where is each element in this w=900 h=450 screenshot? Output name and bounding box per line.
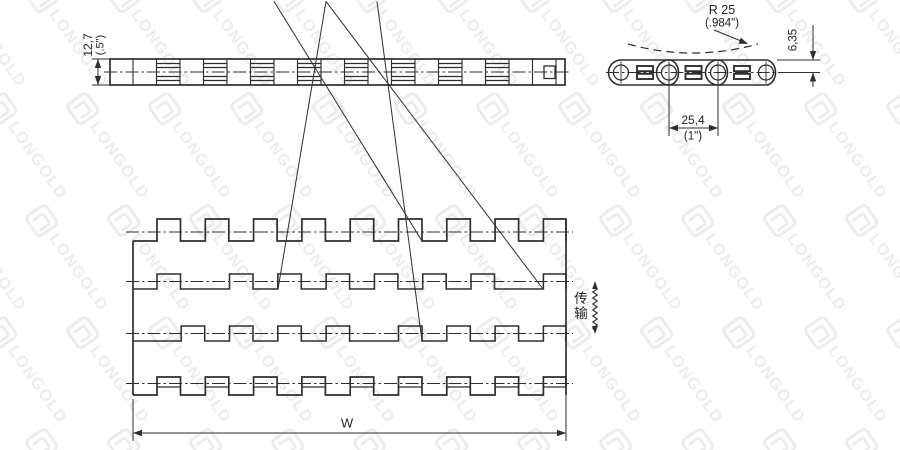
drawing-line xyxy=(326,1,543,289)
side-height-mm-label: 12,7 xyxy=(82,33,94,56)
belt-side-view xyxy=(92,59,571,85)
pitch-mm-label: 25,4 xyxy=(681,114,704,126)
link-bar xyxy=(734,74,750,79)
side-height-inch-label: (.5") xyxy=(96,35,107,55)
dimension-arrowhead xyxy=(557,430,566,436)
drawing-line xyxy=(274,1,422,241)
dimension-arrowhead xyxy=(810,73,816,82)
dimension-arrowhead xyxy=(669,125,678,131)
flow-arrow-head xyxy=(592,326,598,334)
top-to-center-mm-label: 6,35 xyxy=(788,29,800,51)
belt-width-label: W xyxy=(341,417,353,430)
dimension-arrowhead xyxy=(133,430,142,436)
dimension-arrowhead xyxy=(709,125,718,131)
link-bar xyxy=(734,66,750,71)
flow-arrow-head xyxy=(592,281,598,289)
drawing-line xyxy=(278,1,326,289)
dimension-arrowhead xyxy=(95,59,101,68)
radius-leader-arrowhead xyxy=(738,38,748,44)
belt-top-edge xyxy=(133,219,566,241)
link-bar xyxy=(637,66,653,71)
drawing-line xyxy=(377,1,422,341)
dimension-arrowhead xyxy=(95,76,101,85)
drawing-canvas xyxy=(0,0,900,450)
pitch-inch-label: (1") xyxy=(684,131,702,143)
backflex-radius-label: R 25 xyxy=(709,4,735,17)
flow-arrow-shaft xyxy=(593,286,597,331)
engineering-drawing: LONGOLDLONGOLDLONGOLDLONGOLDLONGOLDLONGO… xyxy=(0,0,900,450)
link-bar xyxy=(637,74,653,79)
dimension-arrowhead xyxy=(810,51,816,60)
link-bar xyxy=(686,66,702,71)
backflex-arc xyxy=(628,44,758,53)
link-bar xyxy=(686,74,702,79)
backflex-radius-inch-label: (.984") xyxy=(705,18,739,30)
belt-bottom-edge xyxy=(133,377,566,395)
flow-direction-label: 传输 xyxy=(573,291,589,321)
